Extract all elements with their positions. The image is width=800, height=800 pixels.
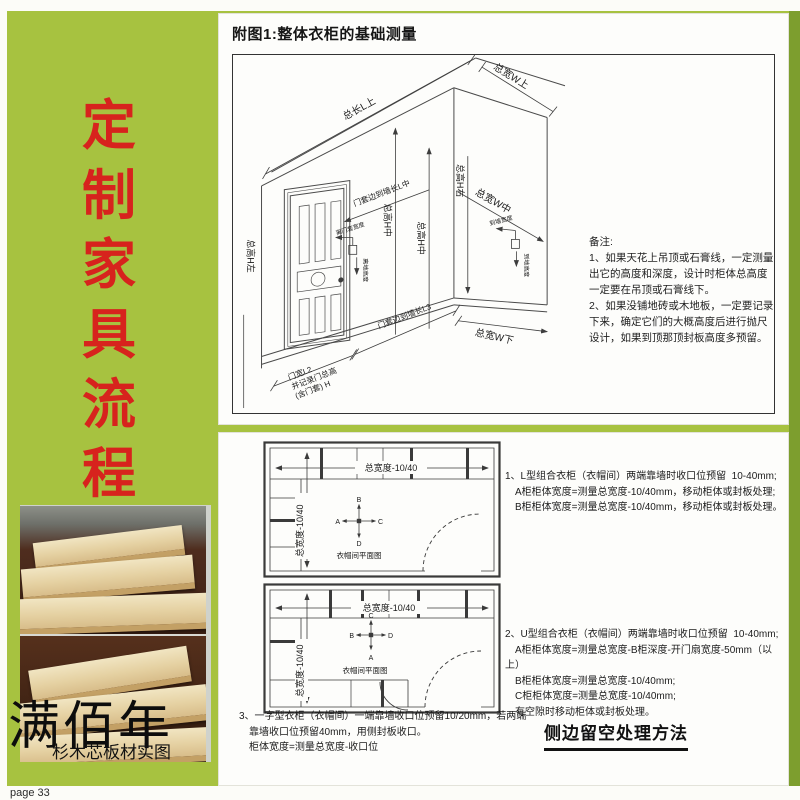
door-handle-icon [338, 277, 343, 283]
dim-label: 到地高度 [522, 253, 530, 277]
banner-char: 具 [78, 307, 140, 364]
dim-label: 到墙宽度 [488, 214, 513, 228]
floorplan-panel: 总宽度-10/40 总宽度-10/40 B A C D 衣帽间平面图 1、L型组… [218, 432, 789, 786]
room-corner-walls [244, 58, 565, 408]
note-line: 下来，确定它们的大概高度后进行抛尺 [589, 315, 775, 331]
dim-label: 总宽W下 [474, 325, 515, 346]
l-shape-floorplan: 总宽度-10/40 总宽度-10/40 B A C D 衣帽间平面图 [263, 441, 501, 578]
note-line: 1、L型组合衣柜（衣帽间）两端靠墙时收口位预留 10-40mm; [505, 469, 785, 485]
dimension-labels: 总长L上 总宽W上 总宽W中 总宽W下 总高H左 总高H中 总高H中 总高H右 … [246, 60, 532, 401]
top-white-strip [0, 0, 800, 11]
note-line: A柜柜体宽度=测量总宽度-B柜深度-开门扇宽度-50mm（以上） [505, 643, 785, 674]
vertical-red-title: 定 制 家 具 流 程 [78, 98, 140, 503]
figure-title: 附图1:整体衣柜的基础测量 [232, 23, 417, 44]
wood-board [20, 593, 206, 634]
entry-door-arc [423, 514, 480, 571]
socket-icon [511, 239, 519, 248]
page-number: page 33 [10, 787, 50, 799]
note-line: 2、U型组合衣柜（衣帽间）两端靠墙时收口位预留 10-40mm; [505, 627, 785, 643]
dim-label: 总高H右 [455, 164, 466, 197]
bottom-white-strip [0, 786, 800, 800]
u-shape-note: 2、U型组合衣柜（衣帽间）两端靠墙时收口位预留 10-40mm; A柜柜体宽度=… [505, 627, 785, 720]
banner-char: 流 [78, 377, 140, 434]
door-width-label-block: 门宽L2 并记录门总高 (含门套) H [286, 356, 341, 401]
plan1-dimensions: 总宽度-10/40 总宽度-10/40 [276, 453, 488, 567]
dim-label: 门套边到墙长L中 [352, 178, 412, 209]
photo-caption: 杉木芯板材实图 [52, 738, 171, 763]
banner-char: 程 [78, 446, 140, 503]
compass-icon: B A C D [335, 497, 383, 548]
straight-shape-note: 3、一字型衣柜（衣帽间）一端靠墙收口位预留10/20mm，若两端 靠墙收口位预留… [239, 709, 574, 756]
wood-photo-top [20, 506, 206, 634]
dim-label: 总宽度-10/40 [363, 602, 416, 613]
banner-char: 家 [78, 237, 140, 294]
catalog-page: 定 制 家 具 流 程 附图1:整体衣柜的基础测量 [0, 0, 800, 800]
plan2-caption: 衣帽间平面图 [343, 665, 388, 675]
wardrobe-isometric-diagram: 总长L上 总宽W上 总宽W中 总宽W下 总高H左 总高H中 总高H中 总高H右 … [233, 55, 773, 412]
compass-letter: A [335, 519, 340, 526]
dim-label: 总宽度-10/40 [365, 462, 418, 473]
compass-icon: C B D A [349, 613, 393, 662]
section-title: 侧边留空处理方法 [544, 719, 688, 751]
dim-label: 总宽度-10/40 [294, 504, 305, 557]
entry-door-arc [425, 651, 481, 707]
note-line: B柜柜体宽度=测量总宽度-10/40mm，移动柜体或封板处理。 [505, 500, 785, 516]
dim-label: 门套边到墙长L3 [376, 301, 433, 331]
dim-label: 总高H中 [416, 222, 427, 255]
cabinet-door-arc [380, 682, 408, 710]
compass-letter: B [349, 633, 354, 640]
measurement-panel: 附图1:整体衣柜的基础测量 [218, 13, 789, 425]
dim-label: 总宽W中 [473, 185, 513, 216]
measurement-diagram-box: 总长L上 总宽W上 总宽W中 总宽W下 总高H左 总高H中 总高H中 总高H右 … [232, 54, 775, 414]
note-line: 出它的高度和深度，设计时柜体总高度 [589, 267, 775, 283]
l-shape-note: 1、L型组合衣柜（衣帽间）两端靠墙时收口位预留 10-40mm; A柜柜体宽度=… [505, 469, 785, 516]
u-shape-floorplan: 总宽度-10/40 总宽度-10/40 C B D A 衣帽间平面图 [263, 583, 501, 714]
dim-label: 总高H中 [382, 204, 393, 237]
note-line: 一定要在吊顶或石膏线下。 [589, 283, 775, 299]
banner-char: 制 [78, 168, 140, 225]
plan1-caption: 衣帽间平面图 [337, 550, 382, 560]
compass-letter: D [388, 633, 393, 640]
compass-letter: B [357, 497, 362, 504]
left-white-strip [0, 0, 7, 800]
note-line: 柜体宽度=测量总宽度-收口位 [239, 740, 574, 756]
dim-label: 离地高度 [362, 258, 370, 282]
compass-letter: A [369, 655, 374, 662]
compass-letter: D [356, 541, 361, 548]
note-line: 1、如果天花上吊顶或石膏线，一定测量 [589, 251, 775, 267]
note-line: 靠墙收口位预留40mm，用侧封板收口。 [239, 725, 574, 741]
note-line: 设计，如果到顶那顶封板高度多预留。 [589, 331, 775, 347]
note-line: B柜柜体宽度=测量总宽度-10/40mm; [505, 674, 785, 690]
room-door [284, 181, 349, 350]
note-line: C柜柜体宽度=测量总宽度-10/40mm; [505, 689, 785, 705]
measurement-notes: 备注: 1、如果天花上吊顶或石膏线，一定测量 出它的高度和深度，设计时柜体总高度… [589, 235, 775, 347]
dim-label: 总高H左 [246, 239, 257, 272]
dim-label: 总长L上 [340, 94, 377, 122]
note-line: 备注: [589, 235, 775, 251]
right-dark-green-strip [789, 11, 800, 786]
note-line: 2、如果没铺地砖或木地板，一定要记录 [589, 299, 775, 315]
note-line: A柜柜体宽度=测量总宽度-10/40mm，移动柜体或封板处理; [505, 485, 785, 501]
dim-label: 总宽W上 [491, 60, 531, 92]
compass-letter: C [368, 613, 373, 620]
note-line: 3、一字型衣柜（衣帽间）一端靠墙收口位预留10/20mm，若两端 [239, 709, 574, 725]
banner-char: 定 [78, 98, 140, 155]
compass-letter: C [378, 519, 383, 526]
dim-label: 总宽度-10/40 [294, 644, 305, 697]
